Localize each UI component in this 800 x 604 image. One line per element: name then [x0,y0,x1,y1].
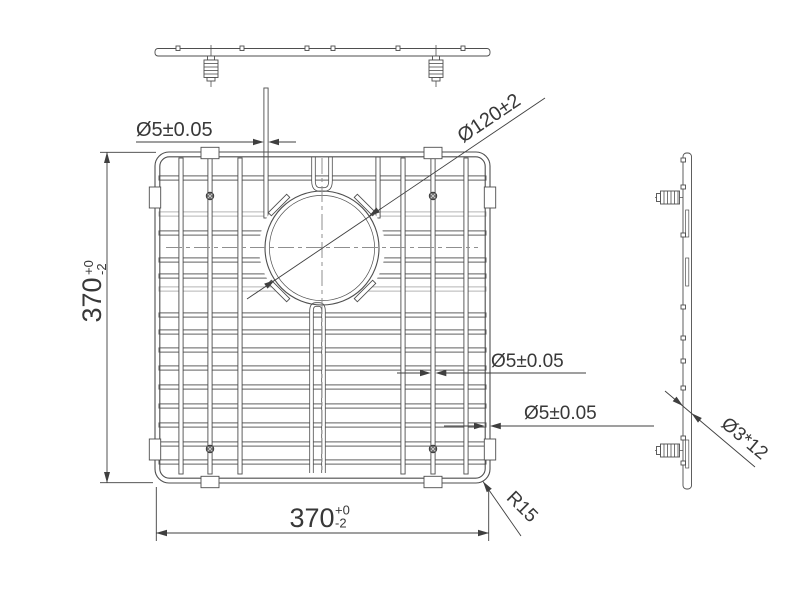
frame-pad [201,476,219,487]
wire-tick [681,336,686,340]
foot-bumper [655,444,683,457]
frame-pad [484,187,495,208]
wire-tick [305,46,309,51]
top-view-bar [155,49,490,57]
top-view [155,45,490,87]
frame-pad [424,147,442,158]
arrowhead [268,139,279,145]
mounting-screw [206,445,214,453]
wire-tick [176,46,180,51]
arrowhead [490,423,501,429]
front-view [149,88,495,488]
frame-pad [149,187,160,208]
wire-tick [681,359,686,363]
mounting-screw [429,445,437,453]
tolerance-minus: -2 [335,516,347,531]
vertical-wire [431,158,435,474]
dimension-label: Ø3*12 [717,414,772,465]
frame-pad [201,147,219,158]
side-view [655,153,692,489]
drawing-canvas: Ø5±0.05 Ø120±2 370 +0 -2 [0,0,800,604]
foot-bumper [655,191,683,204]
wire-tick [681,461,686,465]
arrowhead [483,482,492,493]
arrowhead [253,139,264,145]
frame-pad [484,439,495,460]
dim-wire-dia-top: Ø5±0.05 [136,119,296,145]
wire-tick [461,46,465,51]
dim-width: 370 +0 -2 [156,487,489,541]
frame-pad [424,476,442,487]
mounting-screw [429,192,437,200]
arrowhead [420,370,431,376]
vertical-wire [208,158,212,474]
arrowhead [104,472,110,483]
dimension-label: 370 [289,503,334,533]
dimension-label: 370 [77,277,107,322]
dim-foot-screw: Ø3*12 [665,391,772,467]
wire-tick [240,46,244,51]
arrowhead [104,152,110,163]
technical-drawing-sink-grid: Ø5±0.05 Ø120±2 370 +0 -2 [0,0,800,604]
dim-height: 370 +0 -2 [77,152,156,483]
tolerance-minus: -2 [94,263,109,275]
vertical-wire [179,158,183,474]
arrowhead [156,530,167,536]
dimension-label: Ø5±0.05 [524,403,597,424]
frame-pad [149,439,160,460]
wire-tick [331,46,335,51]
vertical-wire [401,158,405,474]
dim-wire-dia-mid: Ø5±0.05 [397,351,586,376]
dimension-label: R15 [502,487,541,526]
vertical-wire [464,158,468,474]
wire-tick [681,305,686,309]
arrowhead [478,530,489,536]
measured-vertical-wire [264,88,268,218]
arrowhead [673,397,683,406]
wire-tick [681,436,686,440]
wire-tick [681,386,686,390]
wire-tick [681,158,686,162]
dimension-label: Ø5±0.05 [491,351,564,372]
dim-corner-radius: R15 [483,482,542,537]
arrowhead [436,370,447,376]
wire-tick [396,46,400,51]
wire-tick [681,233,686,237]
dimension-label: Ø5±0.05 [136,119,213,141]
mounting-screw [206,192,214,200]
wire-tick [681,185,686,189]
vertical-wire [238,158,242,474]
